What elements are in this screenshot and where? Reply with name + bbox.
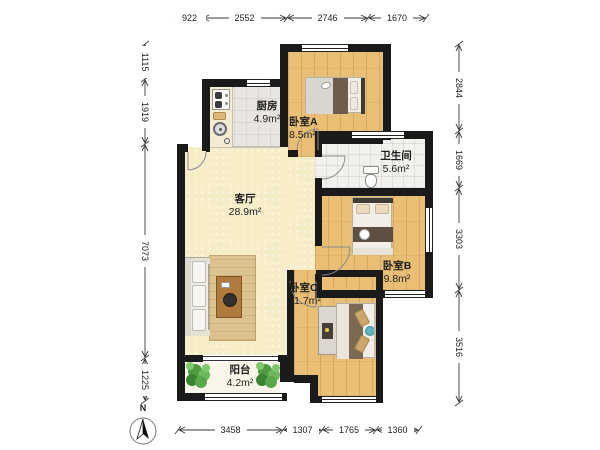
wall (177, 144, 185, 362)
wall (318, 150, 322, 157)
dimension-label: 1225 (139, 364, 151, 396)
dimension-label: 1919 (139, 96, 151, 128)
coffee-table (216, 276, 242, 318)
window (385, 290, 425, 298)
window (205, 393, 282, 401)
kettle-icon (223, 293, 237, 307)
dimension-label: 1765 (333, 424, 365, 436)
wall (383, 44, 391, 140)
kitchen-counter (210, 87, 233, 147)
tv-icon (322, 323, 333, 339)
stove-icon (212, 89, 230, 110)
wall (404, 131, 433, 139)
dimension-label: 1670 (381, 12, 413, 24)
room-label-bedroom-b: 卧室B 9.8m² (368, 260, 426, 286)
window (425, 208, 433, 252)
pillow (375, 204, 389, 214)
pillow (350, 97, 358, 110)
wall (177, 393, 205, 401)
wall (278, 355, 287, 362)
dimension-label: 1360 (382, 424, 414, 436)
wall (206, 144, 210, 152)
dimension-label: 922 (174, 12, 206, 24)
dimension-label: 3458 (215, 424, 247, 436)
wall (282, 393, 287, 401)
wardrobe (318, 306, 337, 355)
north-label: N (136, 402, 150, 414)
bed-b (352, 197, 392, 254)
bed-a (305, 77, 365, 113)
dimension-label: 2844 (453, 72, 465, 104)
dimension-label: 1115 (139, 46, 151, 78)
hallway-floor (287, 144, 315, 270)
dimension-label: 1669 (453, 144, 465, 176)
bed-c (336, 303, 377, 358)
wall (202, 79, 210, 151)
sliding-door (203, 356, 278, 361)
sofa (184, 257, 209, 335)
wall (315, 188, 433, 196)
window (322, 396, 376, 403)
window (352, 131, 404, 139)
dimension-label: 1307 (287, 424, 319, 436)
compass-north-icon (130, 418, 156, 444)
wall (202, 79, 288, 87)
pillow (350, 81, 358, 94)
room-label-living: 客厅 28.9m² (206, 193, 284, 219)
dimension-label: 2746 (312, 12, 344, 24)
wall (315, 196, 322, 246)
wall (185, 355, 203, 362)
window (302, 44, 348, 52)
bedroom-c-cutout (294, 383, 310, 396)
floor-plan-canvas: 厨房 4.9m² 卧室A 8.5m² 卫生间 5.6m² 客厅 28.9m² 卧… (0, 0, 600, 450)
wall (310, 396, 322, 403)
cutting-board-icon (213, 112, 226, 120)
room-label-bedroom-a: 卧室A 8.5m² (289, 116, 339, 142)
room-label-balcony: 阳台 4.2m² (202, 364, 278, 390)
window (247, 79, 270, 87)
dimension-label: 3516 (453, 331, 465, 363)
wall (287, 270, 294, 277)
room-label-bathroom: 卫生间 5.6m² (368, 150, 424, 176)
dimension-label: 2552 (229, 12, 261, 24)
faucet-icon (224, 138, 230, 144)
sink-icon (213, 122, 227, 136)
room-label-kitchen: 厨房 4.9m² (238, 100, 296, 126)
room-label-bedroom-c: 卧室C 11.7m² (289, 282, 347, 308)
wall (288, 150, 298, 157)
dimension-label: 7073 (139, 235, 151, 267)
dimension-label: 3303 (453, 223, 465, 255)
pillow (356, 204, 370, 214)
